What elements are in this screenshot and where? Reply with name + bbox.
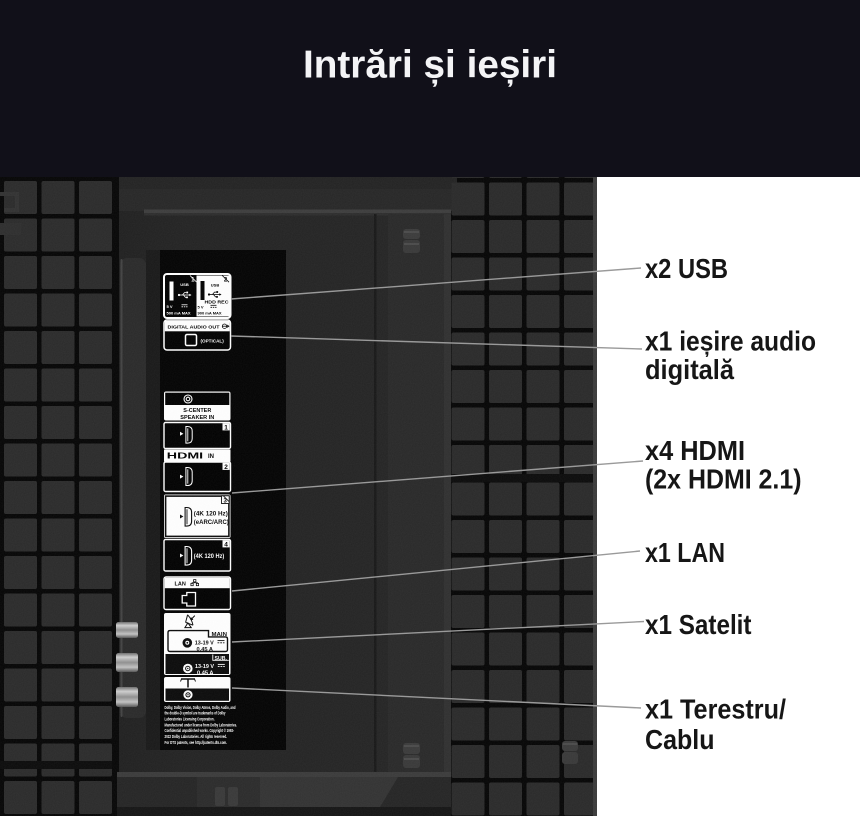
- svg-text:Cablu: Cablu: [645, 724, 715, 755]
- svg-text:x4 HDMI: x4 HDMI: [645, 435, 745, 466]
- svg-text:digitală: digitală: [645, 354, 734, 385]
- svg-text:(2x HDMI 2.1): (2x HDMI 2.1): [645, 464, 802, 495]
- svg-text:x1 Satelit: x1 Satelit: [645, 609, 752, 640]
- svg-text:Intrări și ieșiri: Intrări și ieșiri: [303, 44, 557, 87]
- svg-text:x2 USB: x2 USB: [645, 253, 728, 284]
- svg-text:x1 LAN: x1 LAN: [645, 537, 725, 568]
- svg-text:x1 Terestru/: x1 Terestru/: [645, 694, 786, 725]
- svg-text:x1 ieșire audio: x1 ieșire audio: [645, 326, 816, 357]
